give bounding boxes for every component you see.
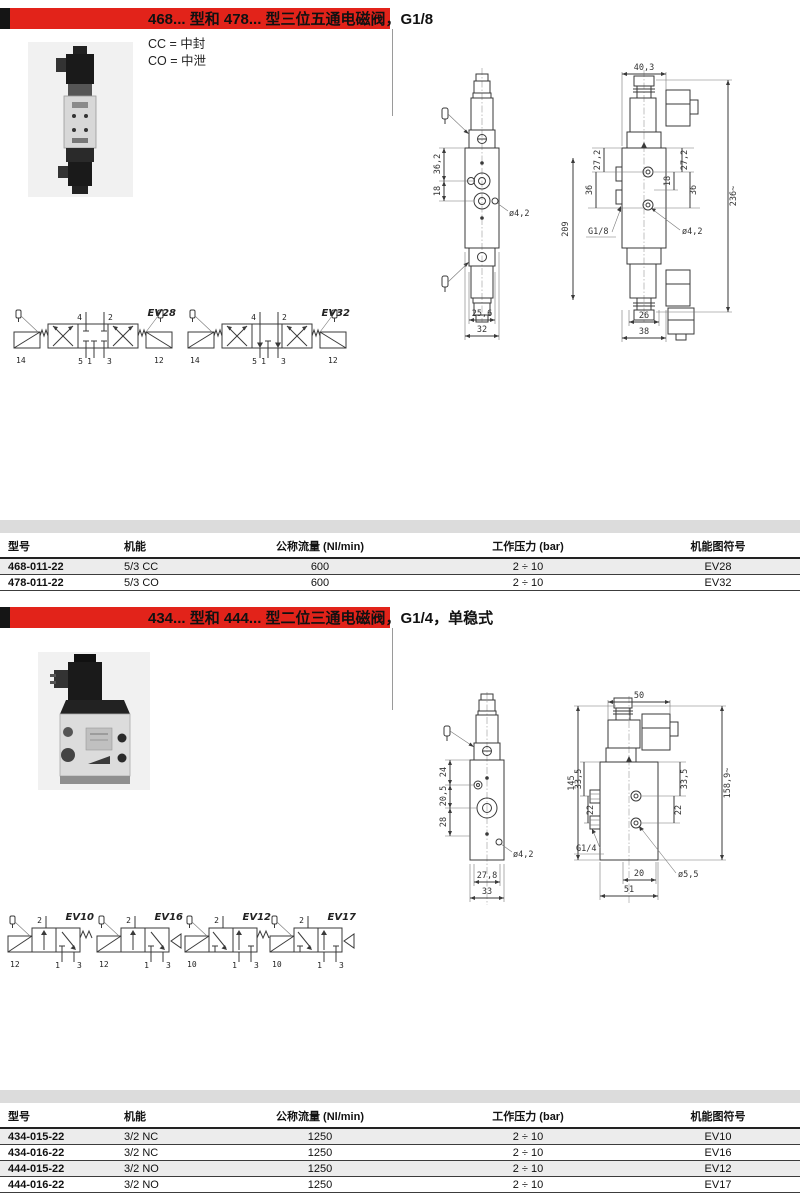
col-header-function: 机能 [124,536,220,558]
dim-label: 158,9~ [723,768,733,799]
header-black-block [0,607,10,628]
dim-label: 36 [585,185,595,195]
dim-label: 27,2 [680,150,690,170]
cell-function: 3/2 NC [124,1145,220,1161]
table-top-band [0,1090,800,1103]
pneumatic-symbol-ev12: EV12 2 10 1 3 [181,910,273,970]
cell-flow: 1250 [220,1161,420,1177]
port-number: 1 [55,961,60,970]
port-number: 2 [37,916,42,925]
dim-label: 38 [639,327,649,337]
dim-label: 36 [689,185,699,195]
header-black-block [0,8,10,29]
spec-table-468: 型号 机能 公称流量 (Nl/min) 工作压力 (bar) 机能图符号 468… [0,520,800,591]
table-row: 444-016-22 3/2 NO 1250 2 ÷ 10 EV17 [0,1177,800,1193]
port-number: 2 [108,313,113,322]
cell-model: 434-016-22 [0,1145,124,1161]
cell-pressure: 2 ÷ 10 [420,1177,636,1193]
port-label: G1/8 [588,227,608,237]
table-row: 478-011-22 5/3 CO 600 2 ÷ 10 EV32 [0,575,800,591]
pneumatic-symbol-ev16: EV16 2 12 1 3 [93,910,185,970]
cell-function: 3/2 NC [124,1128,220,1145]
dimension-drawing-468: 36,2 18 ø4,2 25,6 32 209 40,3 27,2 36 [430,60,800,365]
col-header-pressure: 工作压力 (bar) [420,1106,636,1128]
cell-model: 444-015-22 [0,1161,124,1177]
cell-model: 468-011-22 [0,558,124,575]
table-header-row: 型号 机能 公称流量 (Nl/min) 工作压力 (bar) 机能图符号 [0,536,800,558]
dim-label: 27,2 [593,150,603,170]
dim-label: 22 [674,805,684,815]
cell-flow: 1250 [220,1177,420,1193]
port-number: 2 [299,916,304,925]
symbol-name: EV16 [155,912,184,923]
symbol-name: EV10 [66,912,95,923]
dim-label: 26 [639,311,649,321]
dim-label: 28 [439,817,449,827]
port-number: 1 [144,961,149,970]
header-divider-line [392,29,393,116]
port-number: 2 [214,916,219,925]
port-number: 3 [281,357,286,366]
col-header-model: 型号 [0,536,124,558]
dim-label: 50 [634,691,644,701]
cell-function: 5/3 CO [124,575,220,591]
cell-pressure: 2 ÷ 10 [420,575,636,591]
dim-label: 20 [634,869,644,879]
col-header-flow: 公称流量 (Nl/min) [220,536,420,558]
cell-pressure: 2 ÷ 10 [420,1145,636,1161]
port-number: 10 [187,960,197,969]
port-number: 14 [190,356,200,365]
cell-pressure: 2 ÷ 10 [420,558,636,575]
cell-symbol: EV17 [636,1177,800,1193]
col-header-model: 型号 [0,1106,124,1128]
port-number: 3 [339,961,344,970]
pneumatic-symbol-ev10: EV10 2 12 1 3 [4,910,96,970]
port-number: 1 [317,961,322,970]
dim-label: 32 [477,325,487,335]
symbol-name: EV17 [328,912,357,923]
cell-symbol: EV10 [636,1128,800,1145]
table-row: 468-011-22 5/3 CC 600 2 ÷ 10 EV28 [0,558,800,575]
dim-label: 40,3 [634,63,654,73]
cell-flow: 600 [220,558,420,575]
cell-flow: 1250 [220,1128,420,1145]
header-divider-line [392,628,393,710]
port-number: 12 [99,960,109,969]
port-number: 3 [254,961,259,970]
dim-label: ø4,2 [682,227,702,237]
dim-label: ø4,2 [513,850,533,860]
port-number: 5 [78,357,83,366]
dim-label: 36,2 [433,154,443,174]
cell-symbol: EV12 [636,1161,800,1177]
legend-co: CO = 中泄 [148,53,206,70]
dim-label: 25,6 [472,309,492,319]
pneumatic-symbol-ev17: EV17 2 10 1 3 [266,910,358,970]
port-number: 5 [252,357,257,366]
table-row: 434-016-22 3/2 NC 1250 2 ÷ 10 EV16 [0,1145,800,1161]
port-label: G1/4 [576,844,596,854]
cell-pressure: 2 ÷ 10 [420,1161,636,1177]
section1-legend: CC = 中封 CO = 中泄 [148,36,206,70]
cell-function: 5/3 CC [124,558,220,575]
port-number: 1 [232,961,237,970]
port-number: 14 [16,356,26,365]
legend-cc: CC = 中封 [148,36,206,53]
dim-label: 22 [586,805,596,815]
dim-label: ø4,2 [509,209,529,219]
port-number: 4 [251,313,256,322]
col-header-symbol: 机能图符号 [636,536,800,558]
table-header-row: 型号 机能 公称流量 (Nl/min) 工作压力 (bar) 机能图符号 [0,1106,800,1128]
cell-symbol: EV16 [636,1145,800,1161]
port-number: 3 [77,961,82,970]
port-number: 1 [261,357,266,366]
dim-label: 27,8 [477,871,497,881]
col-header-function: 机能 [124,1106,220,1128]
port-number: 2 [282,313,287,322]
section2-title: 434... 型和 444... 型二位三通电磁阀，G1/4，单稳式 [148,607,493,628]
pneumatic-symbol-ev32: EV32 4 2 14 5 1 3 12 [182,306,352,366]
port-number: 2 [126,916,131,925]
port-number: 10 [272,960,282,969]
cell-symbol: EV28 [636,558,800,575]
valve-photo-434 [38,652,150,790]
port-number: 3 [107,357,112,366]
valve-photo-468-graphic [28,42,133,197]
col-header-flow: 公称流量 (Nl/min) [220,1106,420,1128]
dim-label: 33,5 [574,769,584,789]
cell-model: 478-011-22 [0,575,124,591]
cell-flow: 600 [220,575,420,591]
dim-label: 33,5 [680,769,690,789]
col-header-pressure: 工作压力 (bar) [420,536,636,558]
valve-photo-468 [28,42,133,197]
dim-label: 20,5 [439,786,449,806]
port-number: 12 [328,356,338,365]
cell-flow: 1250 [220,1145,420,1161]
dim-label: 236~ [729,186,739,206]
cell-symbol: EV32 [636,575,800,591]
valve-photo-434-graphic [38,652,150,790]
port-number: 12 [154,356,164,365]
cell-model: 444-016-22 [0,1177,124,1193]
port-number: 12 [10,960,20,969]
cell-model: 434-015-22 [0,1128,124,1145]
table-row: 434-015-22 3/2 NC 1250 2 ÷ 10 EV10 [0,1128,800,1145]
port-number: 1 [87,357,92,366]
dim-label: ø5,5 [678,870,698,880]
pneumatic-symbol-ev28: EV28 4 2 14 5 1 3 12 [8,306,178,366]
spec-table-434: 型号 机能 公称流量 (Nl/min) 工作压力 (bar) 机能图符号 434… [0,1090,800,1193]
dim-label: 24 [439,767,449,777]
dim-label: 18 [663,176,673,186]
dim-label: 33 [482,887,492,897]
table-top-band [0,520,800,533]
cell-pressure: 2 ÷ 10 [420,1128,636,1145]
port-number: 4 [77,313,82,322]
dimension-drawing-434: 24 20,5 28 ø4,2 27,8 33 50 145 33,5 22 3… [430,690,800,920]
dim-label: 209 [561,221,571,236]
section1-title: 468... 型和 478... 型三位五通电磁阀，G1/8 [148,8,433,29]
col-header-symbol: 机能图符号 [636,1106,800,1128]
cell-function: 3/2 NO [124,1177,220,1193]
cell-function: 3/2 NO [124,1161,220,1177]
dim-label: 18 [433,186,443,196]
port-number: 3 [166,961,171,970]
dim-label: 51 [624,885,634,895]
table-row: 444-015-22 3/2 NO 1250 2 ÷ 10 EV12 [0,1161,800,1177]
